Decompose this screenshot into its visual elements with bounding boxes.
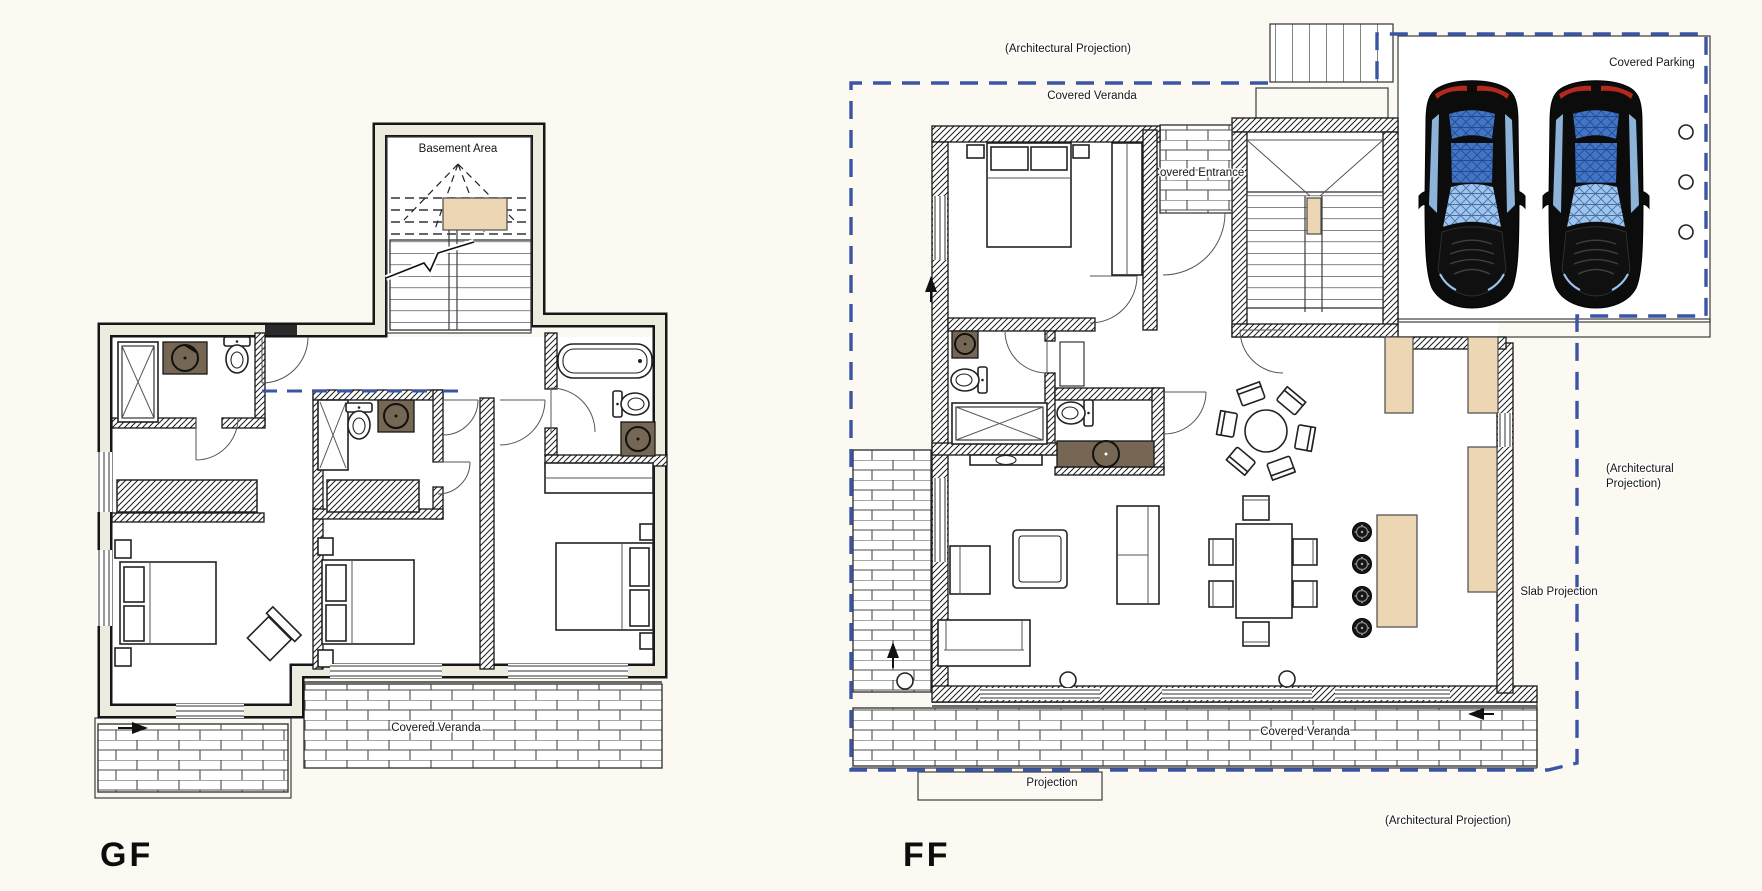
parking-column (1679, 125, 1693, 139)
gf-floor-label: GF (100, 836, 153, 874)
parking-column (1679, 175, 1693, 189)
gf-covered-veranda-label: Covered Veranda (391, 722, 481, 734)
covered-entrance-label: Covered Entrance (1152, 167, 1245, 179)
arch-projection-right-label-1: (Architectural (1606, 463, 1674, 475)
bed (556, 543, 653, 630)
floor-plan-sheet: Covered Veranda Basement Area (0, 0, 1762, 891)
column (897, 673, 913, 689)
sofa-two-seat (1117, 506, 1159, 604)
column (1279, 671, 1295, 687)
ff-veranda-bottom: Covered Veranda (851, 701, 1537, 768)
covered-veranda-top-label: Covered Veranda (1047, 90, 1137, 102)
bed (120, 562, 216, 644)
arch-projection-bottom-label: (Architectural Projection) (1385, 815, 1511, 827)
pillar (1385, 337, 1413, 413)
gf-veranda-left (95, 718, 291, 798)
kitchen-counter (1468, 447, 1497, 592)
ff-covered-veranda-bottom-label: Covered Veranda (1260, 726, 1350, 738)
dining-table (1236, 524, 1292, 618)
gf-bedroom-2 (318, 480, 419, 667)
bed (322, 560, 414, 644)
armchair (950, 546, 990, 594)
ff-projection-steps: Projection (918, 772, 1102, 800)
bed (987, 143, 1071, 247)
ff-projection-label: Projection (1026, 777, 1077, 789)
ff-plan: Covered Veranda Projection Covered Parki… (851, 24, 1710, 874)
floorplan-svg: Covered Veranda Basement Area (0, 0, 1762, 891)
ff-floor-label: FF (903, 836, 951, 874)
basement-area-label: Basement Area (419, 143, 498, 155)
column (1060, 672, 1076, 688)
slab-projection-label: Slab Projection (1520, 586, 1597, 598)
covered-parking-label: Covered Parking (1609, 57, 1695, 69)
pillar (1468, 337, 1498, 413)
arch-projection-top-label: (Architectural Projection) (1005, 43, 1131, 55)
gf-bedroom-3 (545, 463, 653, 649)
stair-landing (1307, 198, 1321, 234)
stair-landing (443, 198, 507, 230)
coffee-table (1013, 530, 1067, 588)
gf-plan: Covered Veranda Basement Area (95, 130, 667, 874)
parked-car-2 (1543, 81, 1649, 308)
parking-column (1679, 225, 1693, 239)
gf-veranda-center: Covered Veranda (297, 676, 662, 768)
parked-car-1 (1419, 81, 1525, 308)
kitchen-island (1377, 515, 1417, 627)
sofa-long (938, 620, 1030, 666)
arch-projection-right-label-2: Projection) (1606, 478, 1661, 490)
